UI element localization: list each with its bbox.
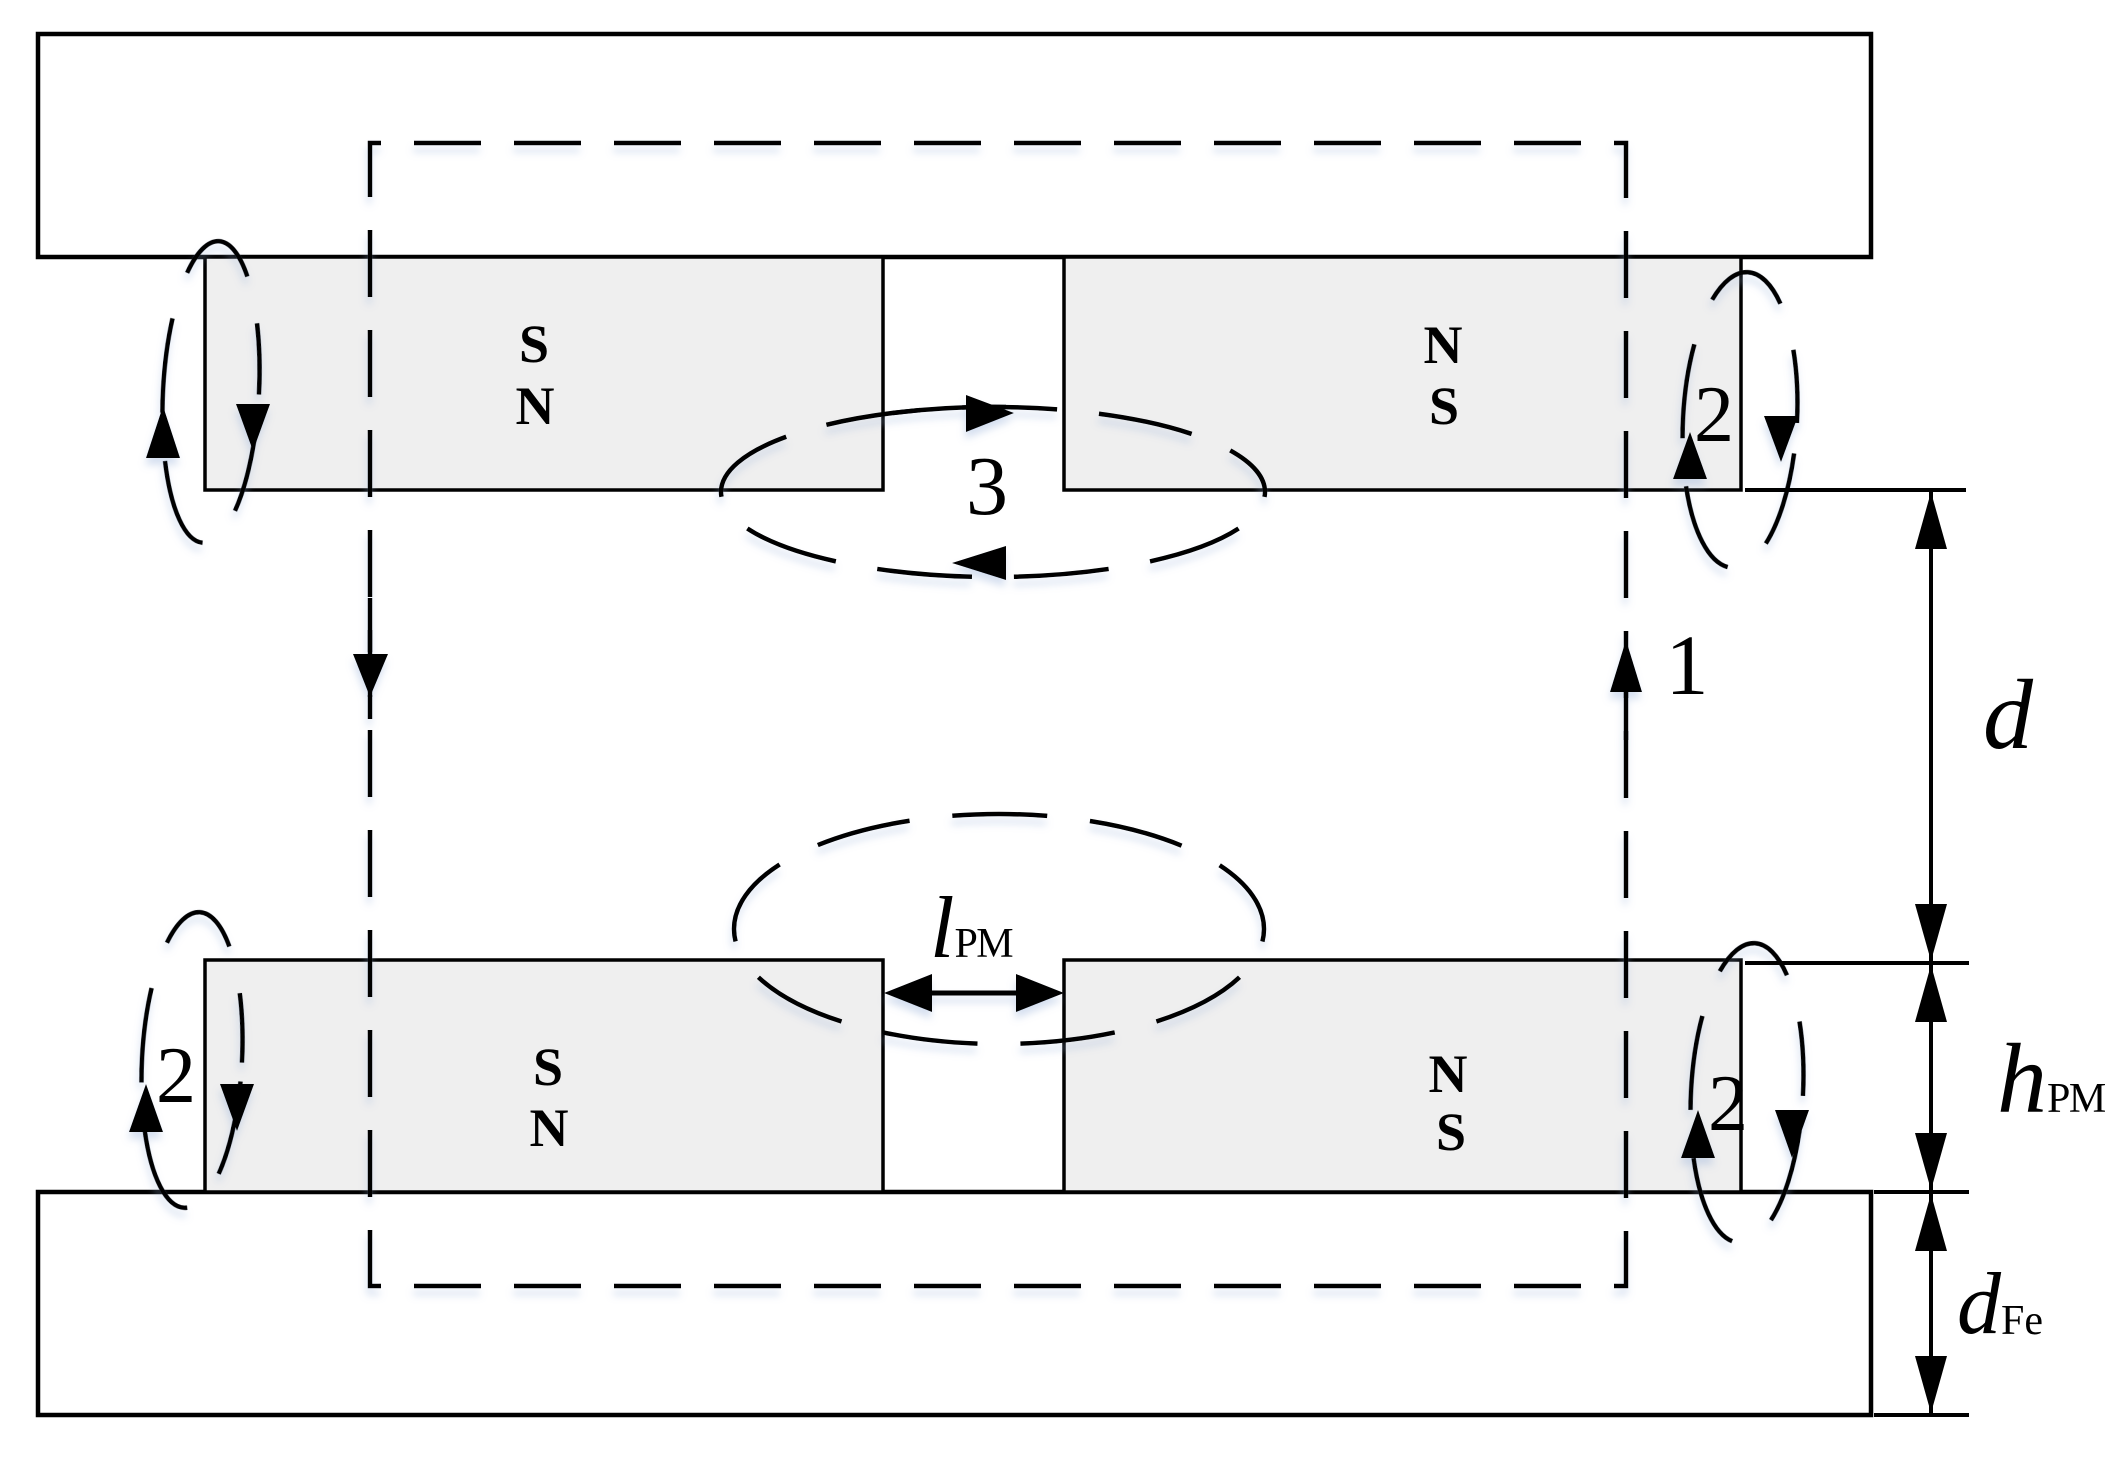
svg-text:2: 2 [156,1032,196,1120]
svg-text:2: 2 [1708,1060,1748,1148]
svg-text:lPM: lPM [930,880,1013,977]
svg-text:S: S [1436,1102,1466,1162]
svg-text:d: d [1983,659,2034,770]
svg-text:N: N [1424,315,1463,375]
svg-text:S: S [533,1037,563,1097]
svg-text:S: S [519,314,549,374]
svg-text:N: N [516,376,555,436]
svg-text:2: 2 [1694,371,1734,459]
svg-text:S: S [1429,376,1459,436]
svg-text:3: 3 [966,440,1008,533]
svg-text:hPM: hPM [1997,1023,2106,1134]
svg-text:N: N [1429,1044,1468,1104]
svg-text:dFe: dFe [1957,1256,2043,1353]
svg-text:N: N [530,1098,569,1158]
svg-text:1: 1 [1666,617,1709,713]
